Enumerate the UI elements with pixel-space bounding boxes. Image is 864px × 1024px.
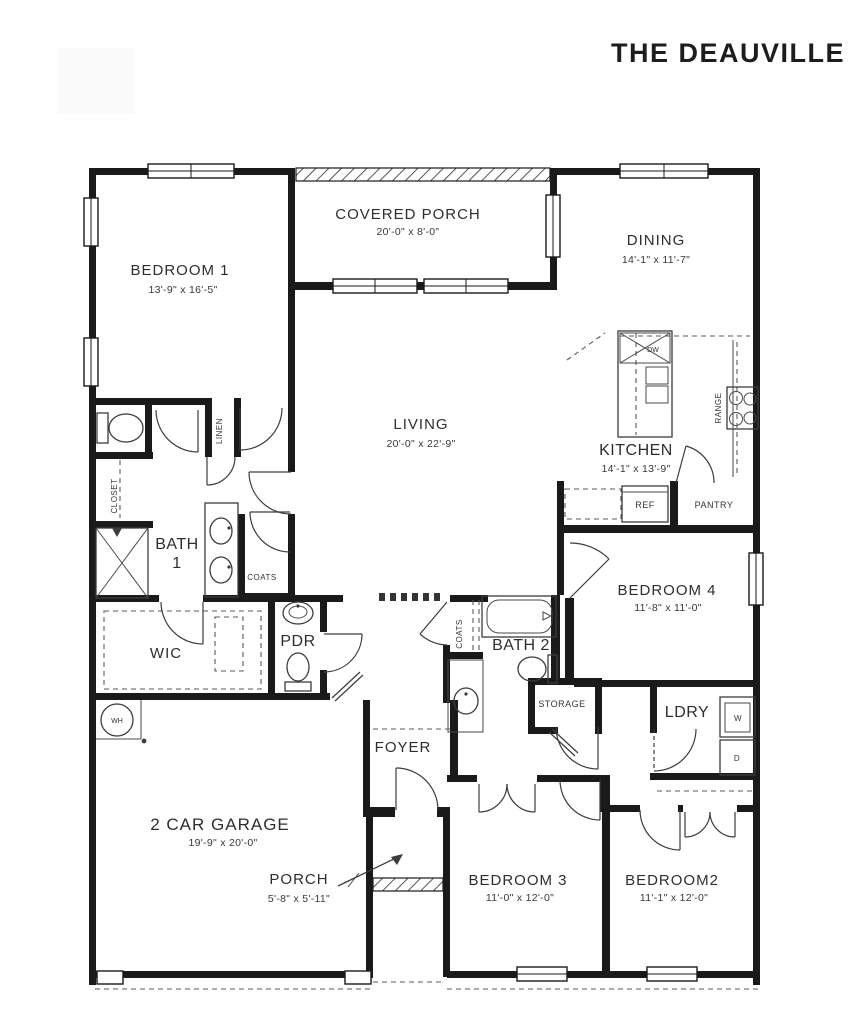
storage-label: STORAGE xyxy=(538,699,585,709)
window xyxy=(84,338,98,386)
bath1-vanity-icon xyxy=(205,503,238,597)
floor-plan: THE DEAUVILLE xyxy=(0,0,864,1024)
range-label: RANGE xyxy=(714,393,723,424)
window xyxy=(749,553,763,605)
bath1-label: BATH xyxy=(155,536,198,553)
window xyxy=(647,967,697,981)
bath1-number: 1 xyxy=(172,555,181,572)
pdr-toilet-icon xyxy=(285,653,311,691)
garage-label: 2 CAR GARAGE xyxy=(150,815,290,834)
wic-label: WIC xyxy=(150,645,182,662)
bedroom1-dims: 13'-9" x 16'-5" xyxy=(148,284,217,296)
bedroom2-label: BEDROOM2 xyxy=(625,872,719,889)
bedroom3-dims: 11'-0" x 12'-0" xyxy=(486,892,554,904)
laundry-label: LDRY xyxy=(665,704,709,721)
porch-dims: 5'-8" x 5'-11" xyxy=(268,893,330,905)
garage-dims: 19'-9" x 20'-0" xyxy=(188,837,257,849)
bedroom4-dims: 11'-8" x 11'-0" xyxy=(634,602,702,614)
bedroom2-dims: 11'-1" x 12'-0" xyxy=(640,892,708,904)
foyer-label: FOYER xyxy=(375,739,432,756)
dining-label: DINING xyxy=(627,232,686,249)
wic-shelving xyxy=(104,611,261,689)
garage-pier xyxy=(345,971,371,984)
kitchen-label: KITCHEN xyxy=(599,442,673,459)
kitchen-island-icon xyxy=(618,331,672,437)
pantry-label: PANTRY xyxy=(695,500,734,510)
dryer-label: D xyxy=(734,754,740,763)
window xyxy=(148,164,234,178)
living-dims: 20'-0" x 22'-9" xyxy=(386,438,455,450)
living-label: LIVING xyxy=(393,416,448,433)
ref-label: REF xyxy=(635,500,655,510)
linen-label: LINEN xyxy=(215,418,224,444)
hatched-walls xyxy=(296,168,550,891)
washer-label: W xyxy=(734,714,742,723)
bedroom1-label: BEDROOM 1 xyxy=(130,262,229,279)
window xyxy=(546,195,560,257)
page-title: THE DEAUVILLE xyxy=(611,38,845,68)
kitchen-dims: 14'-1" x 13'-9" xyxy=(601,463,670,475)
window xyxy=(333,279,417,293)
bedroom3-label: BEDROOM 3 xyxy=(468,872,567,889)
window xyxy=(620,164,708,178)
bath1-toilet-icon xyxy=(97,413,143,443)
porch-label: PORCH xyxy=(269,871,328,888)
covered-porch-label: COVERED PORCH xyxy=(335,206,481,223)
window xyxy=(84,198,98,246)
water-heater-label: WH xyxy=(111,718,123,725)
shower-icon xyxy=(96,528,148,598)
bath2-label: BATH 2 xyxy=(492,637,550,654)
window xyxy=(424,279,508,293)
garage-pier xyxy=(97,971,123,984)
window xyxy=(517,967,567,981)
pdr-sink-icon xyxy=(283,602,313,624)
tub-icon xyxy=(482,596,556,637)
pdr-label: PDR xyxy=(280,633,315,650)
dishwasher-label: DW xyxy=(647,347,659,354)
logo-placeholder xyxy=(58,48,134,114)
bedroom4-label: BEDROOM 4 xyxy=(617,582,716,599)
covered-porch-dims: 20'-0" x 8'-0" xyxy=(377,226,440,238)
coats-bath1-label: COATS xyxy=(247,573,276,582)
wic-island xyxy=(215,617,243,671)
dining-dims: 14'-1" x 11'-7" xyxy=(622,254,690,266)
closet-label: CLOSET xyxy=(110,478,119,513)
coats-hall-label: COATS xyxy=(455,619,464,648)
